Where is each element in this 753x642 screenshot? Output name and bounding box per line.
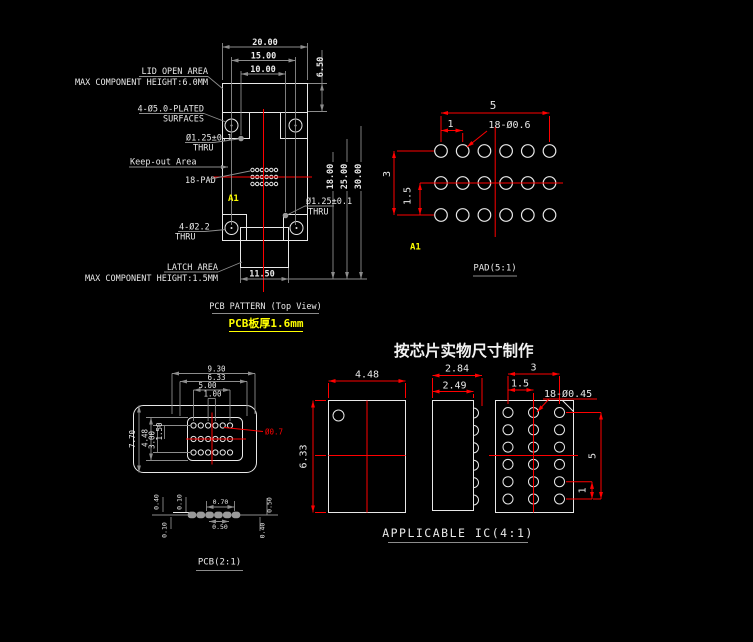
ic-front-view: 4.48 6.33 [299, 370, 406, 513]
dim-30-00: 30.00 [354, 164, 364, 190]
pad [191, 450, 196, 455]
centerlines [186, 413, 246, 465]
pad [522, 145, 535, 158]
latch-area-label: LATCH AREA [167, 263, 218, 273]
pad [555, 494, 565, 504]
pad [265, 182, 268, 185]
pad [191, 423, 196, 428]
pad [274, 168, 277, 171]
dim-2-49: 2.49 [442, 381, 466, 392]
chip-size-note: 按芯片实物尺寸制作 [394, 341, 534, 360]
pad-detail-view: 5 1 18-Ø0.6 3 1.5 A1 PAD(5:1) [382, 99, 563, 276]
dim-25-00: 25.00 [340, 164, 350, 190]
section-pad [188, 512, 197, 519]
applicable-ic-view: 4.48 6.33 2.84 2.49 [299, 363, 602, 543]
pad [270, 182, 273, 185]
pcb-pattern-title: PCB PATTERN (Top View) [209, 302, 322, 312]
pad [555, 459, 565, 469]
pad [435, 145, 448, 158]
latch-tab [241, 228, 289, 268]
dim-1-00: 1.00 [203, 390, 222, 399]
dim-3: 3 [382, 171, 393, 177]
pad [503, 425, 513, 435]
pcb-view-title: PCB(2:1) [198, 558, 241, 568]
dim-0-10-bottom: 0.10 [161, 522, 169, 538]
pcb-pattern-view: 20.00 15.00 10.00 6.50 18.00 25.00 30.00 [75, 38, 367, 332]
hole-corner-thru-label: THRU [175, 233, 195, 243]
dim-0-50-bottom: 0.50 [212, 523, 228, 531]
pad [555, 425, 565, 435]
bump [474, 460, 479, 470]
pad [543, 145, 556, 158]
pad [522, 209, 535, 222]
section-pad [214, 512, 223, 519]
dim-20: 20.00 [252, 38, 278, 48]
pad [227, 423, 232, 428]
pad [503, 408, 513, 418]
pad [256, 168, 259, 171]
pad [227, 450, 232, 455]
keep-out-area-label: Keep-out Area [130, 158, 197, 168]
pad [503, 459, 513, 469]
plated-surfaces-label-2: SURFACES [163, 115, 204, 125]
plated-surfaces-label-1: 4-Ø5.0-PLATED [137, 104, 204, 115]
dim-11-50: 11.50 [249, 270, 275, 280]
hole-top-label: Ø1.25±0.1 [186, 133, 232, 144]
dim-0-40-bottom: 0.40 [259, 523, 267, 539]
bump [474, 478, 479, 488]
ic-view-title: APPLICABLE IC(4:1) [382, 526, 534, 540]
bump [474, 495, 479, 505]
hole-top-thru-label: THRU [193, 144, 213, 154]
lid-open-area-label: LID OPEN AREA [141, 67, 208, 77]
hole-corner-label: 4-Ø2.2 [179, 222, 210, 233]
pad [213, 450, 218, 455]
pcb-cross-section: 0.40 0.10 0.70 0.50 0.10 0.50 0.40 [152, 494, 278, 538]
pad [265, 168, 268, 171]
pad-diameter-label: Ø0.7 [265, 428, 283, 437]
dimensions: 20.00 15.00 10.00 6.50 18.00 25.00 30.00 [223, 38, 368, 283]
pad [555, 442, 565, 452]
dim-0-50-right: 0.50 [266, 497, 274, 513]
dim-6-50: 6.50 [316, 57, 326, 77]
solder-bumps [474, 408, 479, 505]
pin1-mark [333, 410, 344, 421]
pad [503, 477, 513, 487]
latch-max-height-label: MAX COMPONENT HEIGHT:1.5MM [85, 274, 218, 284]
pad [206, 423, 211, 428]
hole-right-label: Ø1.25±0.1 [306, 196, 352, 207]
pad [478, 145, 491, 158]
pad [555, 408, 565, 418]
section-pad [197, 512, 206, 519]
lid-max-height-label: MAX COMPONENT HEIGHT:6.0MM [75, 78, 208, 88]
callouts: LID OPEN AREA MAX COMPONENT HEIGHT:6.0MM… [75, 67, 352, 284]
alignment-hole-dot [238, 136, 244, 142]
dim-6-33: 6.33 [299, 444, 310, 468]
pin1-a1-label: A1 [228, 194, 239, 204]
pad [256, 182, 259, 185]
cad-drawing-canvas: 20.00 15.00 10.00 6.50 18.00 25.00 30.00 [0, 0, 753, 642]
section-pad [205, 512, 214, 519]
dimensions-left: 7.70 4.48 3.00 1.50 [128, 406, 191, 473]
pad [555, 477, 565, 487]
pad-count-label: 18-PAD [185, 176, 216, 186]
pad [543, 209, 556, 222]
pcb-thickness-note: PCB板厚1.6mm [229, 316, 304, 330]
dim-5: 5 [490, 99, 497, 112]
pad [503, 442, 513, 452]
dim-0-40-top: 0.40 [153, 494, 161, 510]
pad [206, 450, 211, 455]
dim-10: 10.00 [250, 65, 276, 75]
dim-1: 1 [447, 119, 453, 130]
dim-3: 3 [530, 363, 536, 374]
dim-1-50: 1.50 [155, 422, 164, 441]
dim-1-5: 1.5 [511, 379, 529, 390]
pad [220, 450, 225, 455]
dim-7-70: 7.70 [128, 429, 137, 448]
dim-0-70: 0.70 [213, 498, 229, 506]
bump [474, 443, 479, 453]
pad-view-title: PAD(5:1) [473, 264, 516, 274]
pad [198, 423, 203, 428]
pad [503, 494, 513, 504]
section-pad [232, 512, 241, 519]
dim-0-10-top: 0.10 [176, 494, 184, 510]
pad [251, 182, 254, 185]
dim-1-5: 1.5 [403, 187, 414, 205]
dim-1: 1 [578, 487, 589, 493]
pad [270, 168, 273, 171]
dim-5: 5 [588, 453, 599, 459]
bump [474, 425, 479, 435]
hole-right-thru-label: THRU [308, 208, 328, 218]
pad [456, 209, 469, 222]
bump-count-label: 18-Ø0.45 [544, 388, 592, 400]
pin1-a1-label: A1 [410, 243, 421, 253]
ic-bump-map-view: 3 1.5 18-Ø0.45 5 1 [489, 363, 601, 513]
pad [435, 209, 448, 222]
dim-15: 15.00 [251, 52, 277, 62]
dim-2-84: 2.84 [445, 364, 469, 375]
dimensions-top: 9.30 6.33 5.00 1.00 [172, 365, 255, 422]
pad [198, 450, 203, 455]
hole-count-label: 18-Ø0.6 [488, 119, 530, 131]
section-pad [223, 512, 232, 519]
pad [213, 423, 218, 428]
ic-side-view: 2.84 2.49 [433, 364, 483, 511]
pcb-detail-view: Ø0.7 9.30 6.33 5.00 1.00 7.70 4.48 [128, 365, 283, 571]
pad [251, 168, 254, 171]
bump [474, 408, 479, 418]
pad [478, 209, 491, 222]
pad [274, 182, 277, 185]
pad [500, 145, 513, 158]
pad [500, 209, 513, 222]
dim-4-48: 4.48 [355, 370, 379, 381]
centerlines [420, 127, 563, 237]
dim-18-00: 18.00 [326, 164, 336, 190]
cad-sheet: 20.00 15.00 10.00 6.50 18.00 25.00 30.00 [0, 0, 753, 642]
alignment-hole-dot [283, 213, 289, 219]
